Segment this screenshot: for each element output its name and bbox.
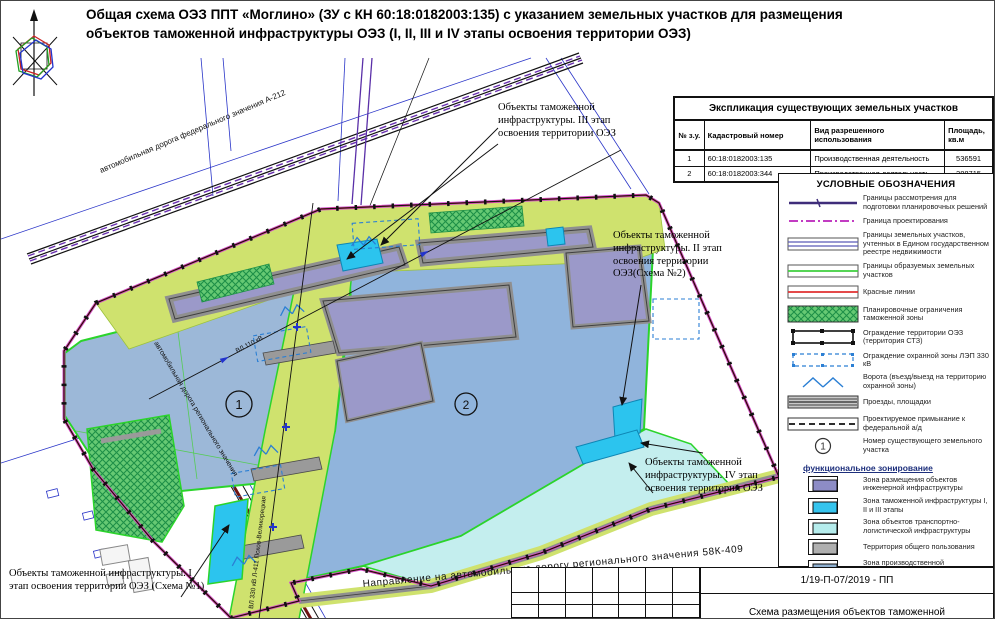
zoning-item: Территория общего пользования [783,539,991,555]
plots-table: Экспликация существующих земельных участ… [673,96,994,183]
svg-text:1: 1 [820,441,826,452]
cell-num: 1 [674,150,704,166]
callout-stage4: Объекты таможенной инфраструктуры. IV эт… [645,457,797,495]
transport-zone-swatch [783,519,863,535]
zoning-item: Зона таможенной инфраструктуры I, II и I… [783,497,991,514]
egrn-border-icon [783,236,863,252]
legend-item: Граница проектирования [783,215,991,227]
oez-fence-icon [783,328,863,346]
federal-junction-icon [783,416,863,432]
legend-item: Планировочные ограничения таможенной зон… [783,305,991,323]
col-header-num: № з.у. [674,120,704,150]
legend-item: Границы рассмотрения для подготовки план… [783,194,991,211]
legend-item: Проектируемое примыкание к федеральной а… [783,415,991,432]
col-header-area: Площадь, кв.м [945,120,993,150]
title-block: 1/19-П-07/2019 - ПП Схема размещения объ… [511,567,994,619]
legend-item: Красные линии [783,284,991,300]
design-border-icon [783,215,863,227]
cell-use: Производственная деятельность [811,150,945,166]
compass-rose-icon [13,9,57,96]
plot-number-icon: 1 [783,437,863,455]
legend-item: Ограждение охранной зоны ЛЭП 330 кВ [783,351,991,369]
plot-1-label: 1 [235,397,242,412]
legend-item: Границы образуемых земельных участков [783,262,991,279]
zoning-item: Зона объектов транспортно-логистической … [783,518,991,535]
red-lines-icon [783,284,863,300]
zoning-title: функциональное зонирование [803,463,993,473]
callout-stage1: Объекты таможенной инфраструктуры. I эта… [9,568,205,594]
page-title-line1: Общая схема ОЭЗ ППТ «Моглино» (ЗУ с КН 6… [86,6,971,25]
title-block-grid [512,568,700,618]
public-territory-swatch [783,539,863,555]
legend-panel: УСЛОВНЫЕ ОБОЗНАЧЕНИЯ Границы рассмотрени… [778,173,994,567]
sheet-title: Схема размещения объектов таможенной [701,594,993,618]
customs-zone-swatch [783,498,863,514]
scheme-page: 1 2 автомобильная дорога федерального зн… [0,0,995,619]
legend-item: 1 Номер существующего земельного участка [783,437,991,455]
page-title-line2: объектов таможенной инфраструктуры ОЭЗ (… [86,25,971,44]
planning-review-border-icon [783,196,863,210]
project-code: 1/19-П-07/2019 - ПП [701,568,993,594]
plots-table-title: Экспликация существующих земельных участ… [674,97,993,120]
formed-plots-border-icon [783,263,863,279]
zoning-item: Зона размещения объектов инженерной инфр… [783,476,991,493]
callout-stage2: Объекты таможенной инфраструктуры. II эт… [613,230,755,281]
legend-title: УСЛОВНЫЕ ОБОЗНАЧЕНИЯ [779,179,993,190]
title-block-right: 1/19-П-07/2019 - ПП Схема размещения объ… [700,568,993,618]
legend-item: Ограждение территории ОЭЗ (территория СТ… [783,328,991,346]
lep-fence-icon [783,351,863,369]
customs-stage1-area [208,499,248,584]
col-header-cadastre: Кадастровый номер [704,120,811,150]
cell-cadastre: 60:18:0182003:135 [704,150,811,166]
driveways-icon [783,394,863,410]
page-title: Общая схема ОЭЗ ППТ «Моглино» (ЗУ с КН 6… [86,6,971,44]
legend-item: Ворота (въезд/выезд на территорию охранн… [783,373,991,390]
federal-road-label: автомобильная дорога федерального значен… [98,88,287,175]
legend-item: Проезды, площадки [783,394,991,410]
cell-area: 536591 [945,150,993,166]
callout-stage3: Объекты таможенной инфраструктуры. III э… [498,102,650,140]
plot-2-label: 2 [463,398,470,412]
table-row: 1 60:18:0182003:135 Производственная дея… [674,150,993,166]
cell-num: 2 [674,166,704,182]
customs-restrictions-icon [783,305,863,323]
engineering-zone-swatch [783,476,863,492]
col-header-use: Вид разрешенного использования [811,120,945,150]
gates-icon [783,374,863,390]
legend-item: Границы земельных участков, учтенных в Е… [783,231,991,257]
